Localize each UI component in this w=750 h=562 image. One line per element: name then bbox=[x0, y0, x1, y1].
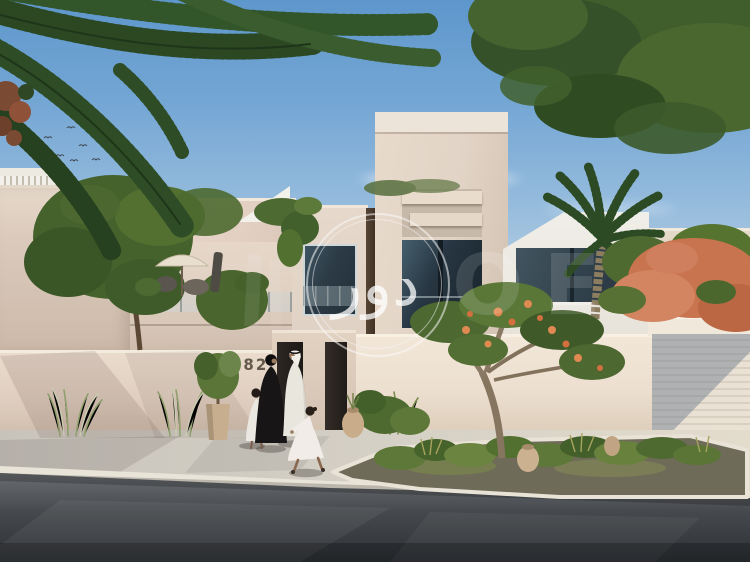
coral-flowering-tree bbox=[598, 224, 750, 332]
gate-side-shrub bbox=[354, 390, 430, 435]
watermark-faint-text: OE bbox=[452, 236, 621, 334]
garden-tree-left bbox=[24, 175, 268, 350]
villa-render-photo: 682 bbox=[0, 0, 750, 562]
tree-canopy-top-right bbox=[468, 0, 750, 154]
watermark-calligraphy: دور bbox=[318, 236, 434, 332]
watermark-faint-stroke bbox=[269, 260, 282, 326]
woman-in-abaya bbox=[255, 354, 287, 443]
